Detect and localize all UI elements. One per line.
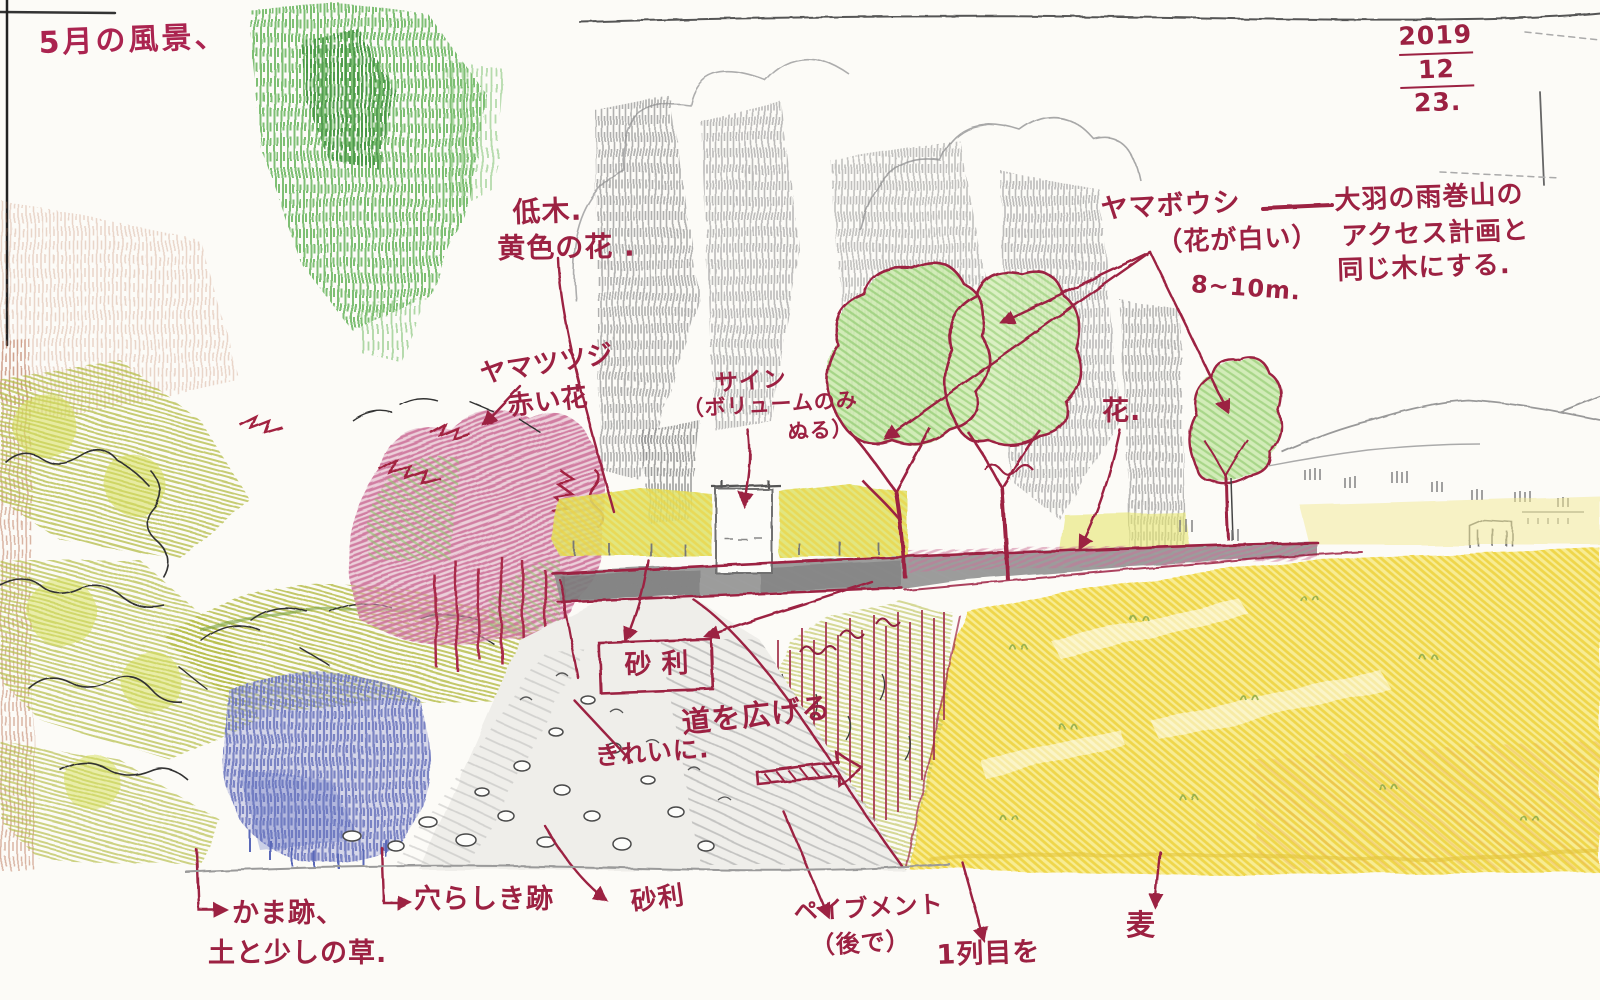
sketch-title: 5月の風景、 — [38, 19, 228, 62]
note-access-line2: アクセス計画と — [1341, 215, 1530, 253]
note-wheat: 麦 — [1126, 908, 1156, 943]
left-bank-vegetation — [0, 200, 260, 870]
note-first-row: 1列目を — [936, 936, 1041, 973]
note-flower: 花. — [1102, 396, 1141, 429]
right-tree — [1189, 358, 1281, 540]
sketch-drawing — [0, 0, 1600, 1000]
note-hole-trace: 穴らしき跡 — [414, 884, 554, 917]
yellow-hedges — [552, 484, 1190, 558]
landscape-sketch-page: 5月の風景、 2019 12 23. 低木. 黄色の花 . ヤマツツジ 赤い花 … — [0, 0, 1600, 1000]
note-gravel-boxed: 砂利 — [624, 647, 699, 683]
note-lowtree-line1: 低木. — [512, 194, 583, 231]
note-lowtree-line2: 黄色の花 . — [497, 230, 636, 267]
note-sign-line3: ぬる） — [787, 417, 854, 446]
note-yamaboushi-white: （花が白い） — [1156, 222, 1319, 259]
date-year: 2019 — [1398, 19, 1473, 52]
note-kama-line2: 土と少しの草. — [208, 938, 387, 971]
date-month: 12 — [1399, 51, 1474, 86]
scan-border-lines — [0, 0, 1600, 345]
note-kama-line1: かま跡、 — [232, 898, 344, 931]
date-day: 23. — [1400, 84, 1475, 119]
note-access-line1: 大羽の雨巻山の — [1334, 179, 1524, 217]
tall-green-trees — [248, 2, 505, 362]
purple-flower-mass — [222, 671, 430, 868]
note-access-line3: 同じ木にする. — [1337, 250, 1511, 288]
date-note: 2019 12 23. — [1398, 19, 1475, 119]
note-pavement-line2: （後で） — [810, 927, 911, 961]
